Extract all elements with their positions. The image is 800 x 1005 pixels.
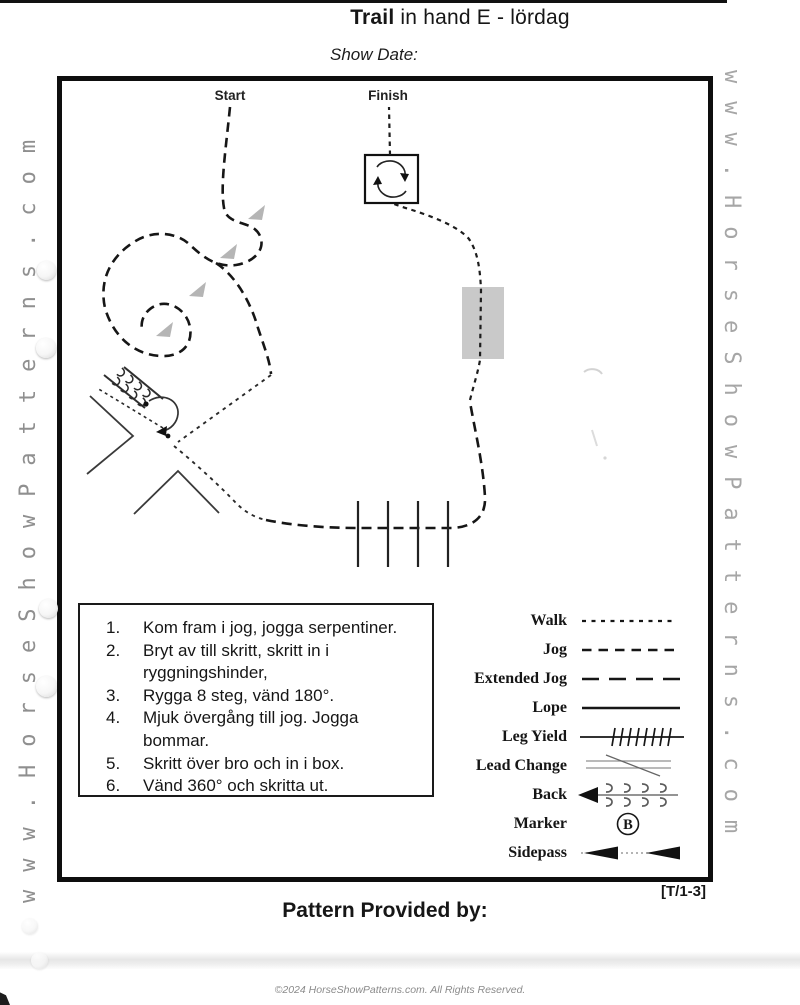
legend-row-extended-jog: Extended Jog [455, 664, 705, 693]
instruction-row: ryggningshinder, [106, 662, 432, 685]
instruction-text: ryggningshinder, [143, 662, 268, 685]
instruction-text: Skritt över bro och in i box. [143, 753, 344, 776]
legend-label: Lead Change [455, 757, 576, 775]
instruction-number: 4. [106, 707, 143, 730]
left-watermark: www.HorseShowPatterns.com [16, 83, 46, 903]
turn-180-arrow [149, 397, 178, 431]
instruction-number: 6. [106, 775, 143, 798]
instruction-number: 5. [106, 753, 143, 776]
turn-arrow-end-dot [166, 434, 171, 439]
instructions-box: 1.Kom fram i jog, jogga serpentiner. 2.B… [78, 603, 434, 797]
scan-smudge [603, 456, 606, 459]
back-icon [576, 783, 694, 807]
legend-row-marker: Marker B [455, 809, 705, 838]
instruction-number: 3. [106, 685, 143, 708]
instruction-number: 1. [106, 617, 143, 640]
legend-label: Extended Jog [455, 670, 576, 688]
extended-jog-line-icon [576, 667, 694, 691]
scan-shadow-band [0, 952, 800, 969]
punch-hole-artifact [31, 952, 48, 969]
instruction-number [106, 730, 143, 753]
instruction-row: 6.Vänd 360° och skritta ut. [106, 775, 432, 798]
punch-hole-artifact [39, 599, 58, 618]
bridge-obstacle [462, 287, 504, 359]
walk-line-icon [576, 609, 694, 633]
instruction-text: Rygga 8 steg, vänd 180°. [143, 685, 334, 708]
punch-hole-artifact [36, 338, 56, 358]
legend-row-lead-change: Lead Change [455, 751, 705, 780]
jog-serpentine-path [103, 107, 261, 356]
leg-yield-icon [576, 725, 694, 749]
jog-serpentine-exit-path [216, 263, 271, 374]
instruction-row: 4.Mjuk övergång till jog. Jogga [106, 707, 432, 730]
direction-arrow-icon [248, 205, 265, 220]
direction-arrow-icon [156, 322, 173, 337]
jog-line-icon [576, 638, 694, 662]
turn-box-obstacle [365, 155, 418, 203]
turn-arrow-head-icon [373, 176, 382, 185]
pattern-code: [T/1-3] [661, 883, 706, 900]
turn-360-arrow-bottom [378, 182, 406, 197]
scan-smudge [584, 369, 602, 374]
legend-label: Leg Yield [455, 728, 576, 746]
legend-row-lope: Lope [455, 693, 705, 722]
walk-exit-path [174, 446, 266, 520]
legend-label: Jog [455, 641, 576, 659]
legend-row-leg-yield: Leg Yield [455, 722, 705, 751]
pattern-provided-by: Pattern Provided by: [230, 899, 540, 923]
obstacle-rail-bottom-chevron [134, 471, 219, 514]
legend-row-back: Back [455, 780, 705, 809]
walk-chute-path [97, 388, 163, 428]
legend-row-walk: Walk [455, 606, 705, 635]
instruction-text: Vänd 360° och skritta ut. [143, 775, 328, 798]
turn-arrow-head-icon [400, 173, 409, 182]
walk-approach-path [178, 375, 271, 442]
scan-smudge [592, 430, 597, 446]
instruction-text: Kom fram i jog, jogga serpentiner. [143, 617, 397, 640]
instruction-text: Mjuk övergång till jog. Jogga [143, 707, 358, 730]
obstacle-rail-left-chevron [87, 396, 133, 474]
direction-arrow-icon [189, 282, 206, 297]
punch-hole-artifact [22, 918, 38, 934]
legend-label: Lope [455, 699, 576, 717]
sidepass-icon [576, 841, 694, 865]
legend-label: Marker [455, 815, 576, 833]
instruction-row: 3.Rygga 8 steg, vänd 180°. [106, 685, 432, 708]
legend-label: Sidepass [455, 844, 576, 862]
legend-row-jog: Jog [455, 635, 705, 664]
instruction-row: 2.Bryt av till skritt, skritt in i [106, 640, 432, 663]
legend-label: Walk [455, 612, 576, 630]
right-watermark: www.HorseShowPatterns.com [714, 70, 744, 908]
instruction-text: Bryt av till skritt, skritt in i [143, 640, 329, 663]
instruction-row: 1.Kom fram i jog, jogga serpentiner. [106, 617, 432, 640]
turn-arrow-start-dot [143, 401, 148, 406]
instruction-row: bommar. [106, 730, 432, 753]
legend: Walk Jog Extended Jog Lope Leg Yield [455, 606, 705, 867]
punch-hole-artifact [36, 676, 57, 697]
jog-poles-path [266, 402, 485, 528]
punch-hole-artifact [37, 261, 56, 280]
instruction-text: bommar. [143, 730, 209, 753]
lope-line-icon [576, 696, 694, 720]
copyright-line: ©2024 HorseShowPatterns.com. All Rights … [200, 984, 600, 996]
marker-icon: B [576, 812, 694, 836]
direction-arrow-icon [220, 244, 237, 259]
lead-change-icon [576, 754, 694, 778]
legend-row-sidepass: Sidepass [455, 838, 705, 867]
legend-label: Back [455, 786, 576, 804]
marker-letter: B [623, 817, 633, 833]
walk-finish-path [389, 107, 390, 155]
instruction-row: 5.Skritt över bro och in i box. [106, 753, 432, 776]
instruction-number: 2. [106, 640, 143, 663]
pattern-sheet: Trail in hand E - lördag Show Date: Star… [0, 0, 800, 1005]
instruction-number [106, 662, 143, 685]
